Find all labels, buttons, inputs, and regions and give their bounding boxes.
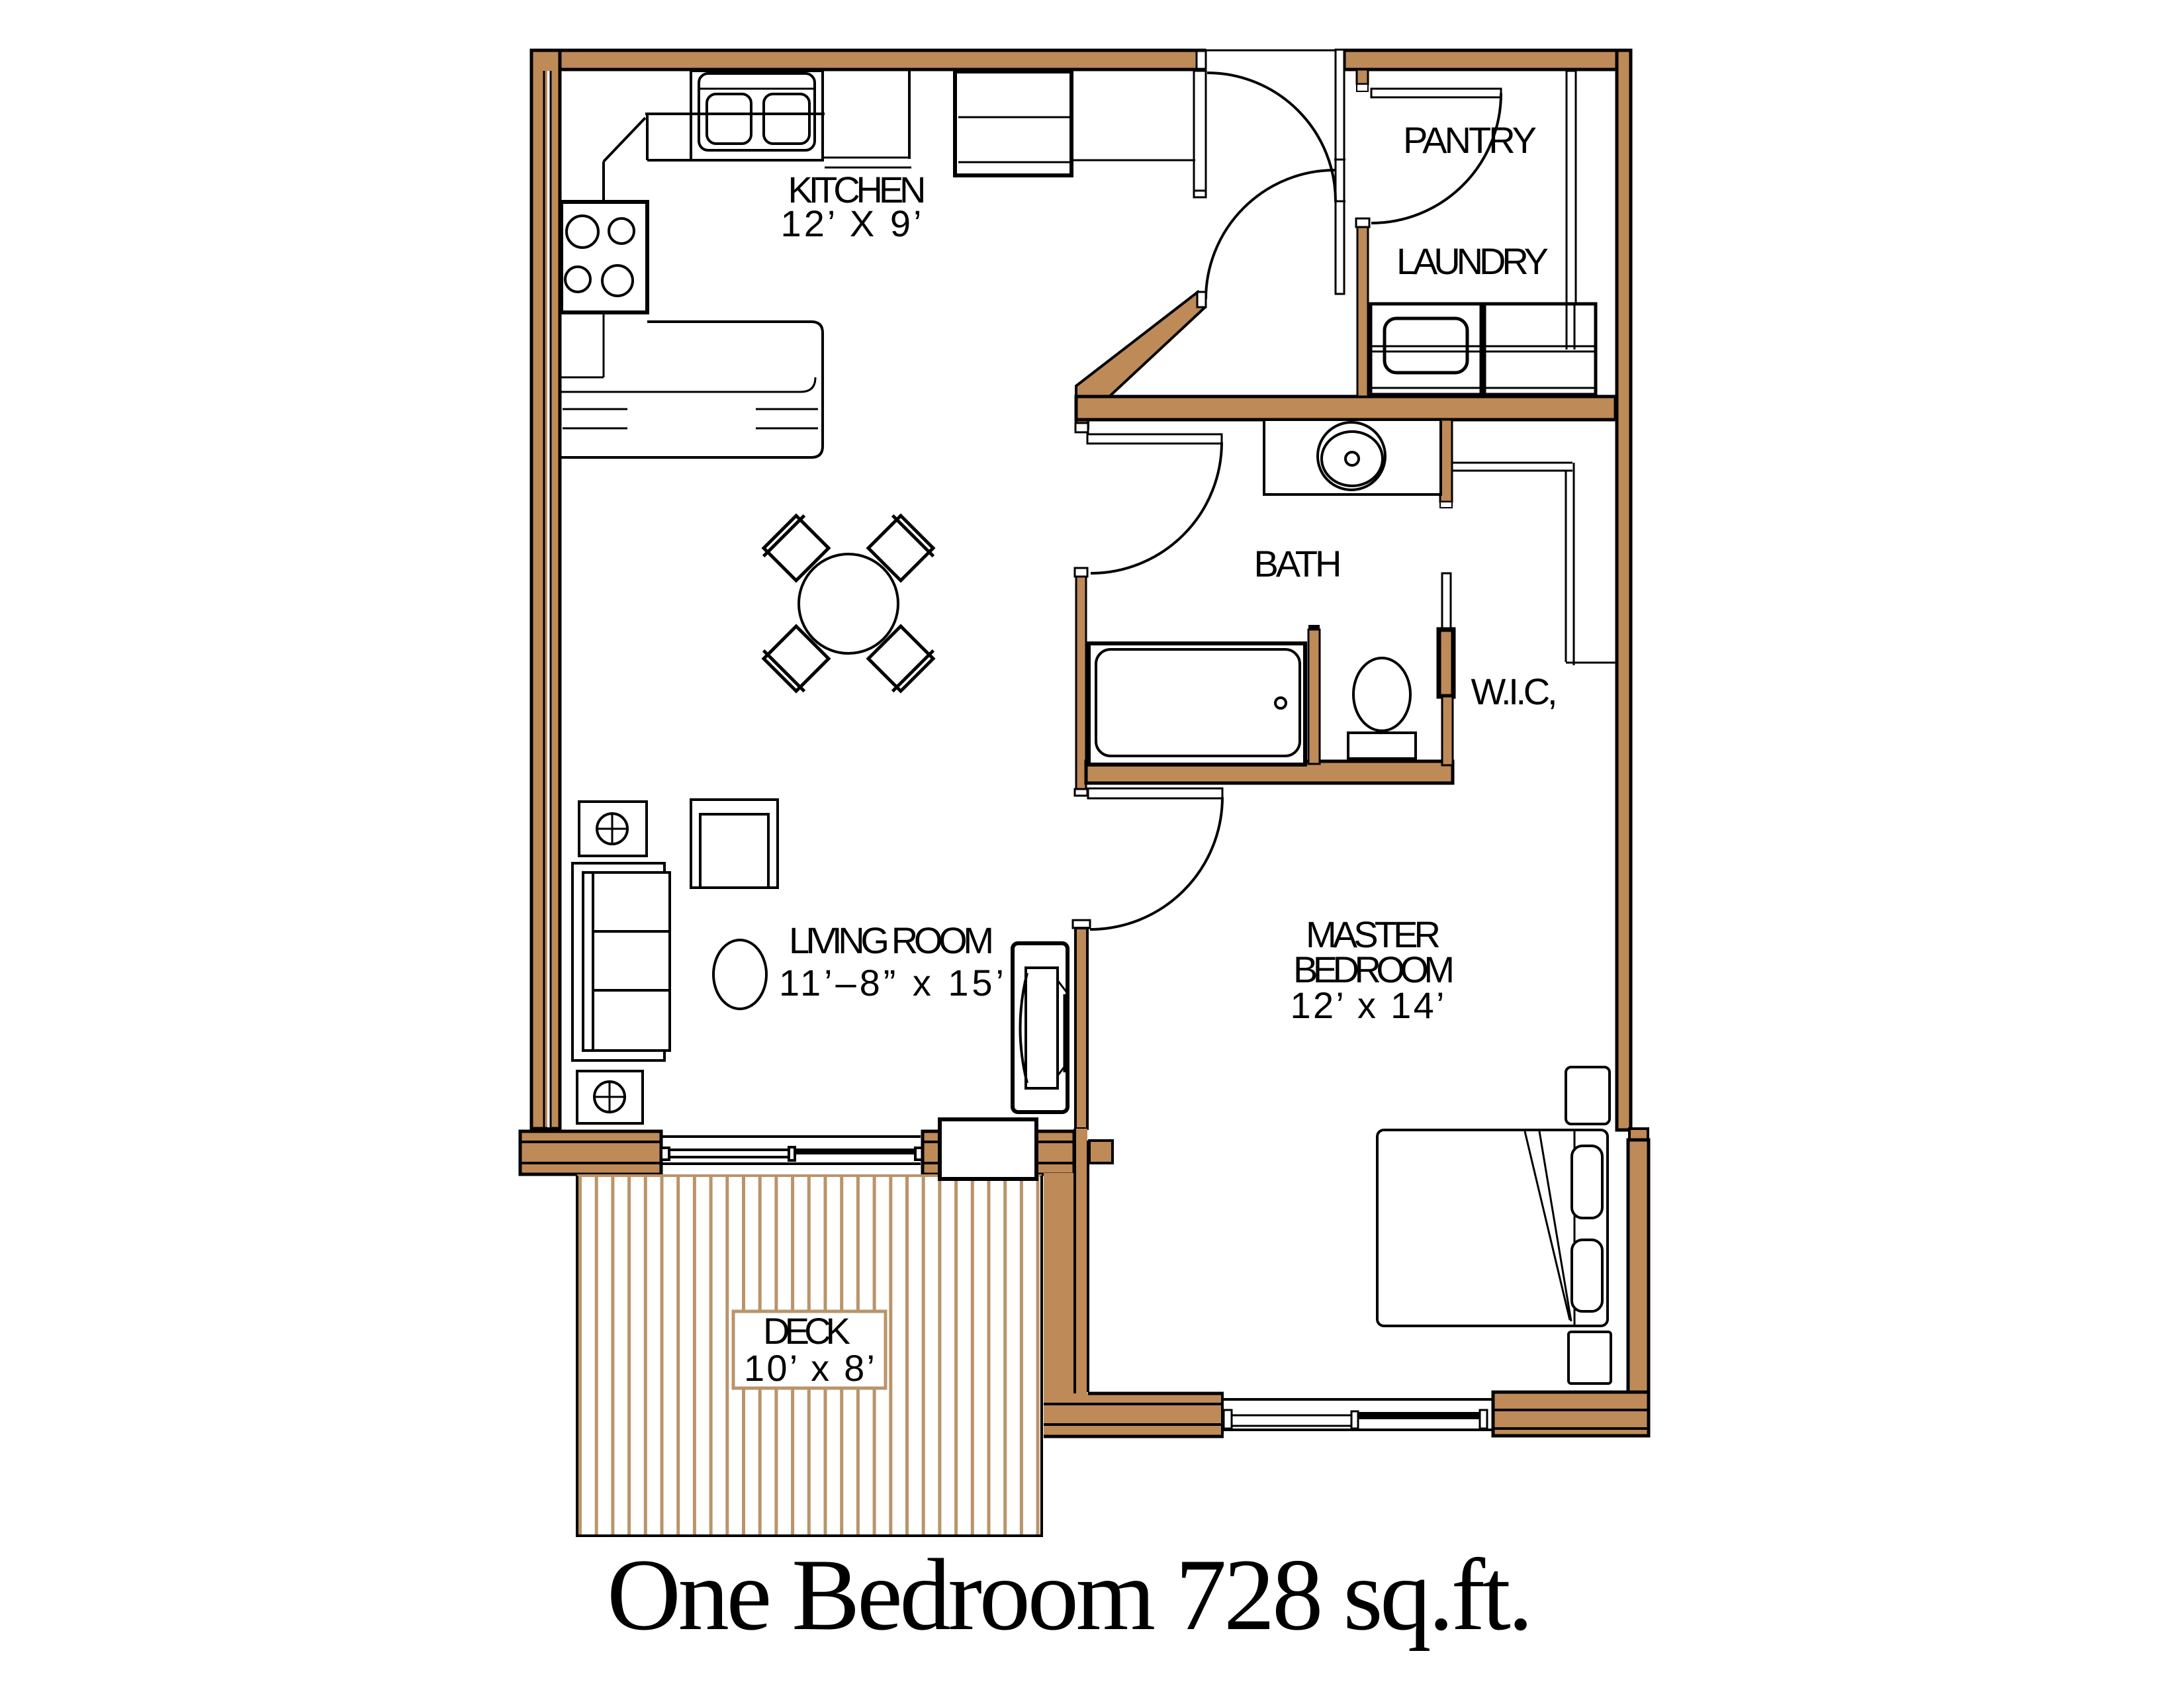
svg-text:One Bedroom 728 sq.ft.: One Bedroom 728 sq.ft. [607,1538,1533,1652]
svg-text:12’ x 14’: 12’ x 14’ [1291,984,1447,1026]
svg-text:W.I.C,: W.I.C, [1471,671,1561,712]
svg-text:11’–8” x 15’: 11’–8” x 15’ [779,962,1007,1004]
svg-text:12’ X 9’: 12’ X 9’ [781,203,925,244]
svg-text:BATH: BATH [1254,543,1345,585]
svg-text:10’ x 8’: 10’ x 8’ [744,1347,878,1389]
svg-text:LAUNDRY: LAUNDRY [1396,240,1551,282]
svg-text:PANTRY: PANTRY [1403,119,1539,161]
svg-text:DECK: DECK [763,1310,853,1352]
svg-text:LIVING ROOM: LIVING ROOM [789,919,997,961]
